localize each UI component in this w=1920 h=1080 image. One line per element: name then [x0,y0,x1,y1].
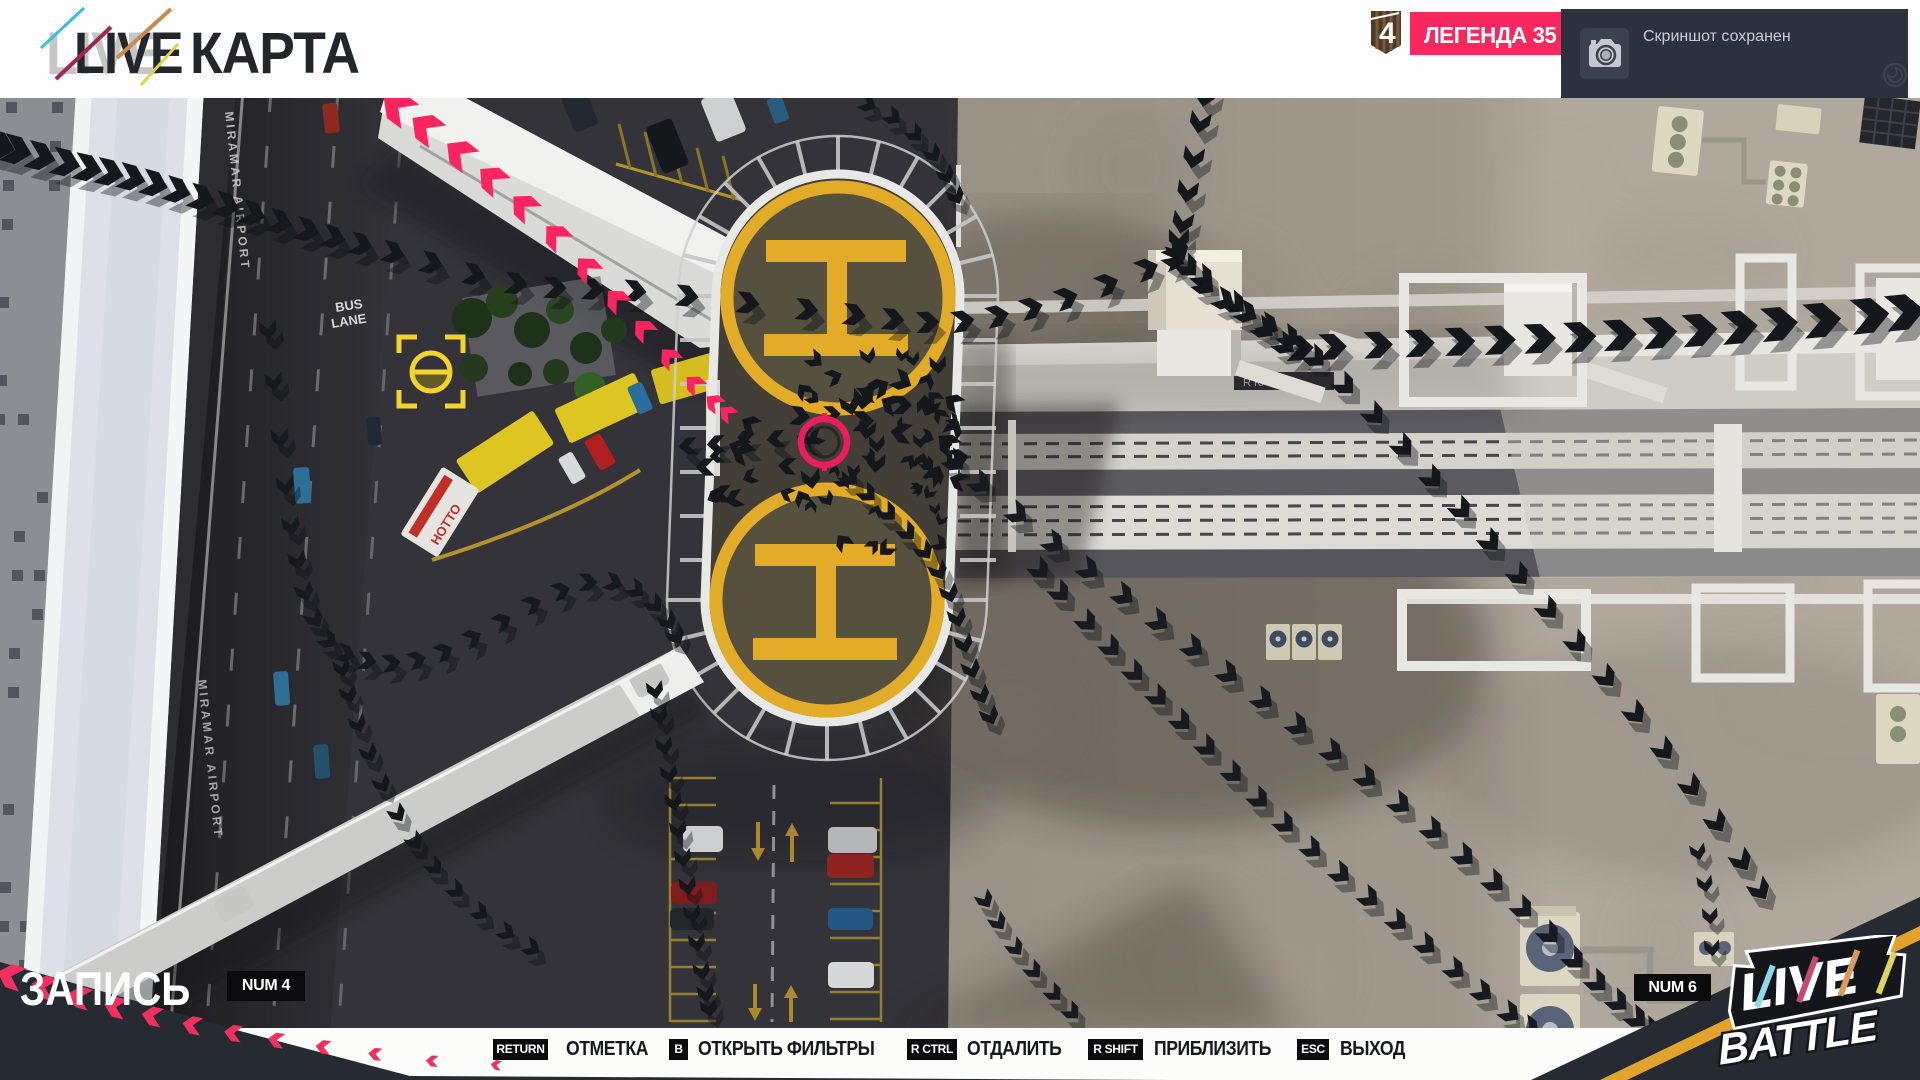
svg-text:4: 4 [1379,17,1396,50]
